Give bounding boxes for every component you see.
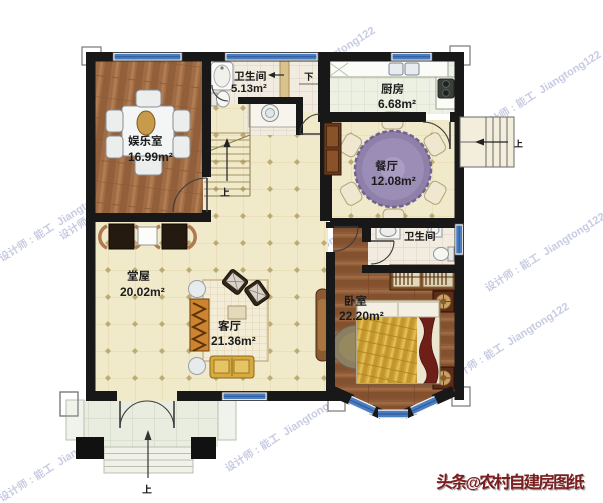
svg-text:16.99m²: 16.99m²: [128, 150, 173, 164]
svg-text:5.13m²: 5.13m²: [231, 83, 267, 95]
svg-text:22.20m²: 22.20m²: [339, 309, 384, 323]
svg-text:21.36m²: 21.36m²: [211, 334, 256, 348]
svg-text:6.68m²: 6.68m²: [378, 97, 416, 111]
svg-text:12.08m²: 12.08m²: [371, 174, 416, 188]
svg-text:20.02m²: 20.02m²: [120, 285, 165, 299]
svg-text:@: @: [466, 475, 482, 492]
